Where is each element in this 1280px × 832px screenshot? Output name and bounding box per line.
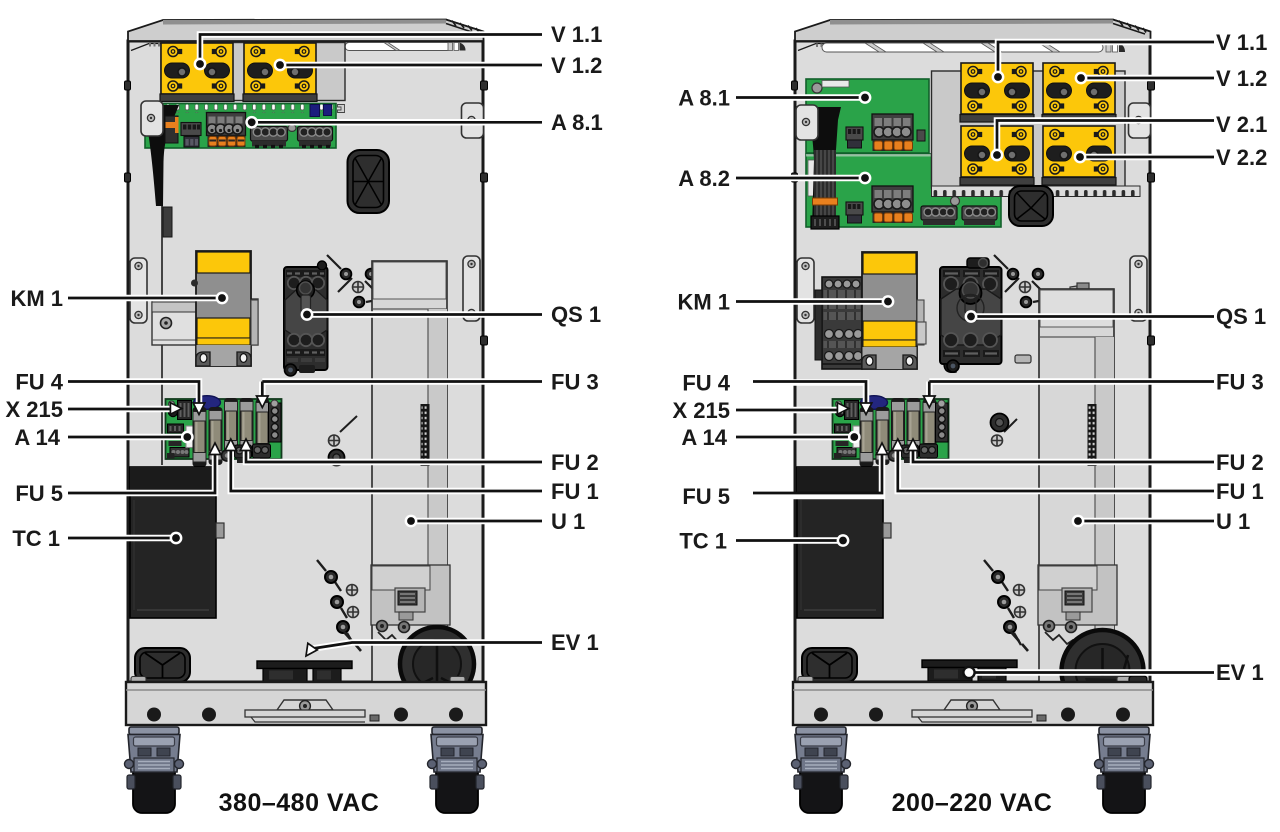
svg-text:U 1: U 1 [1216,509,1250,534]
svg-text:FU 1: FU 1 [551,479,599,504]
svg-text:A 8.1: A 8.1 [551,110,603,135]
svg-text:V 2.2: V 2.2 [1216,145,1267,170]
svg-text:200–220 VAC: 200–220 VAC [892,789,1053,817]
svg-text:EV 1: EV 1 [1216,660,1264,685]
svg-text:U 1: U 1 [551,509,585,534]
svg-text:FU 3: FU 3 [551,370,599,395]
svg-text:FU 2: FU 2 [1216,450,1264,475]
svg-text:X 215: X 215 [6,397,64,422]
svg-text:FU 4: FU 4 [15,370,63,395]
svg-text:V 1.2: V 1.2 [1216,66,1267,91]
svg-text:FU 5: FU 5 [15,481,63,506]
svg-text:V 1.1: V 1.1 [1216,30,1267,55]
svg-text:KM 1: KM 1 [10,286,63,311]
svg-text:A 14: A 14 [14,425,60,450]
svg-text:A 8.1: A 8.1 [678,86,730,111]
svg-text:FU 2: FU 2 [551,450,599,475]
svg-text:V 1.2: V 1.2 [551,53,602,78]
svg-text:FU 5: FU 5 [682,484,730,509]
svg-text:FU 4: FU 4 [682,371,730,396]
svg-text:KM 1: KM 1 [677,290,730,315]
svg-text:QS 1: QS 1 [1216,304,1266,329]
svg-text:X 215: X 215 [673,398,731,423]
svg-text:380–480 VAC: 380–480 VAC [219,789,380,817]
svg-text:TC 1: TC 1 [679,529,727,554]
svg-text:FU 1: FU 1 [1216,479,1264,504]
svg-text:QS 1: QS 1 [551,302,601,327]
svg-text:A 8.2: A 8.2 [678,166,730,191]
svg-text:V 1.1: V 1.1 [551,22,602,47]
svg-text:A 14: A 14 [681,425,727,450]
svg-text:FU 3: FU 3 [1216,370,1264,395]
svg-text:TC 1: TC 1 [12,526,60,551]
svg-text:V 2.1: V 2.1 [1216,112,1267,137]
svg-text:EV 1: EV 1 [551,630,599,655]
